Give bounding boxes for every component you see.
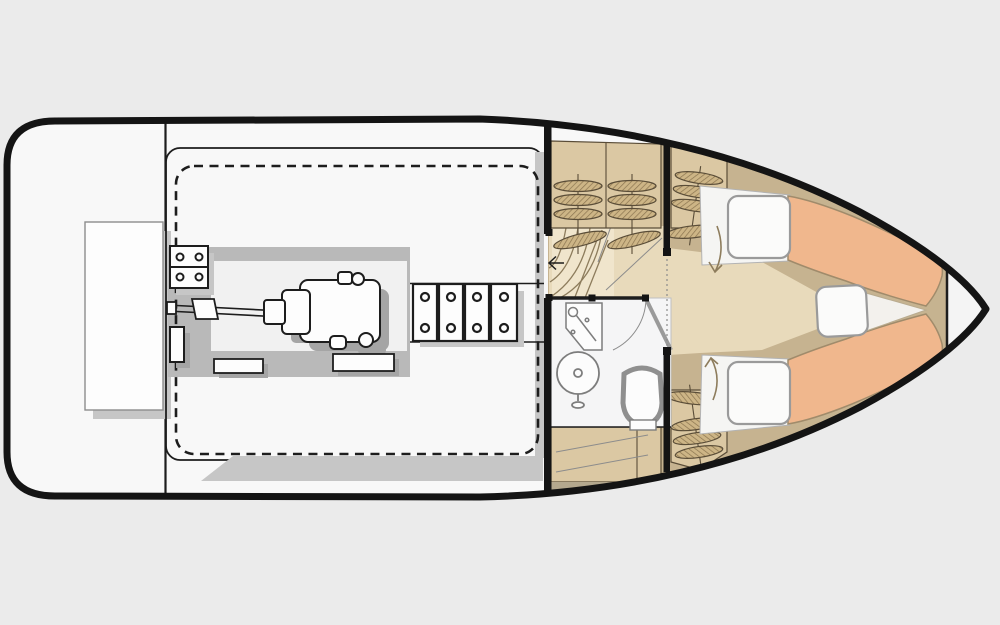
berth-hatch-cushion [728,362,790,424]
bulkhead-dot [663,248,671,256]
wall-dot [589,295,596,302]
toilet [623,368,662,430]
engine-hatch-steps [410,284,544,348]
shaft-coupling [192,299,218,319]
cockpit-sole-shadow [201,456,543,481]
main-bulkhead [544,122,552,496]
engine-mount-bracket [170,246,214,295]
floorplan-svg [0,0,1000,625]
bulkhead-dot [663,347,671,355]
bow-locker [947,240,984,378]
berth-hatch-cushion [728,196,790,258]
floorplan-stage [0,0,1000,625]
wall-dot [642,295,649,302]
head-compartment [549,298,671,430]
cockpit-side-shadow [535,152,544,458]
transom-bench [85,222,163,410]
bow-filler-cushion [816,285,869,338]
